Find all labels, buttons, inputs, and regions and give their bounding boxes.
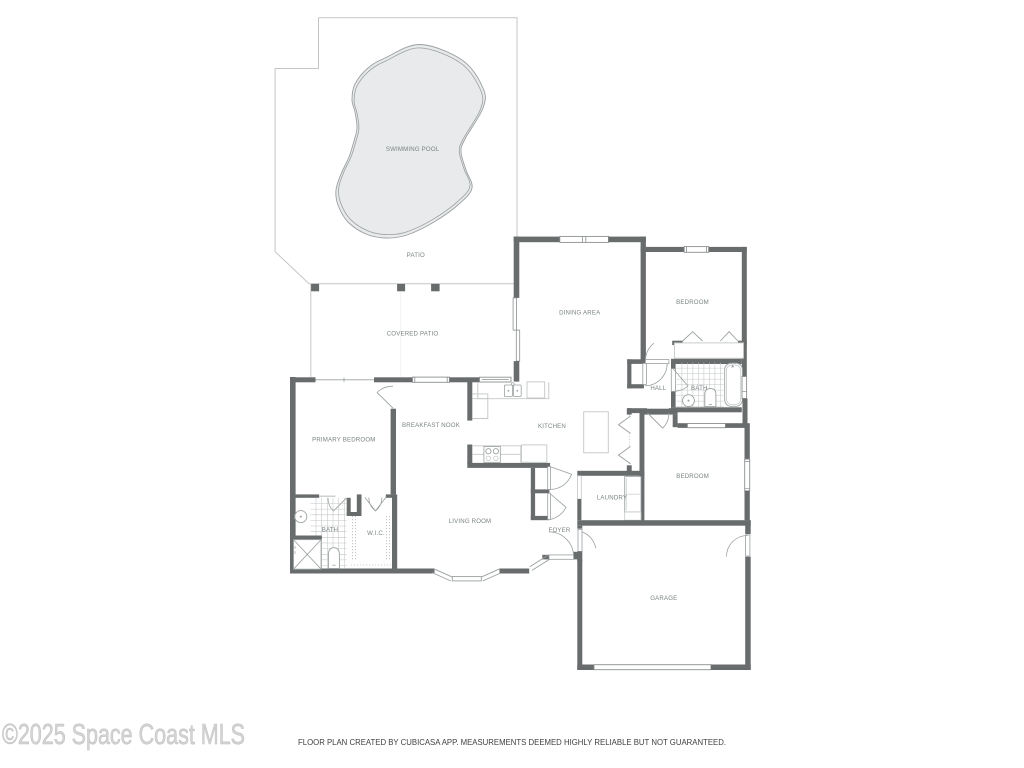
svg-text:KITCHEN: KITCHEN: [538, 423, 566, 430]
svg-text:LIVING ROOM: LIVING ROOM: [449, 518, 492, 525]
svg-text:LAUNDRY: LAUNDRY: [597, 495, 627, 502]
svg-text:PRIMARY BEDROOM: PRIMARY BEDROOM: [312, 437, 375, 444]
svg-text:FLOOR PLAN CREATED BY CUBICASA: FLOOR PLAN CREATED BY CUBICASA APP. MEAS…: [298, 737, 726, 747]
svg-text:GARAGE: GARAGE: [650, 595, 677, 602]
svg-text:BEDROOM: BEDROOM: [676, 299, 709, 306]
svg-text:DINING AREA: DINING AREA: [559, 310, 601, 317]
svg-text:FOYER: FOYER: [549, 527, 571, 534]
svg-text:PATIO: PATIO: [407, 252, 425, 259]
svg-text:BREAKFAST NOOK: BREAKFAST NOOK: [402, 422, 460, 429]
svg-text:COVERED PATIO: COVERED PATIO: [387, 331, 439, 338]
svg-text:BEDROOM: BEDROOM: [676, 473, 709, 480]
svg-text:BATH: BATH: [322, 527, 339, 534]
svg-text:©2025 Space Coast MLS: ©2025 Space Coast MLS: [2, 719, 245, 751]
svg-text:HALL: HALL: [650, 385, 666, 392]
svg-text:SWIMMING POOL: SWIMMING POOL: [386, 146, 440, 153]
svg-text:BATH: BATH: [691, 385, 708, 392]
svg-text:W.I.C.: W.I.C.: [367, 530, 385, 537]
